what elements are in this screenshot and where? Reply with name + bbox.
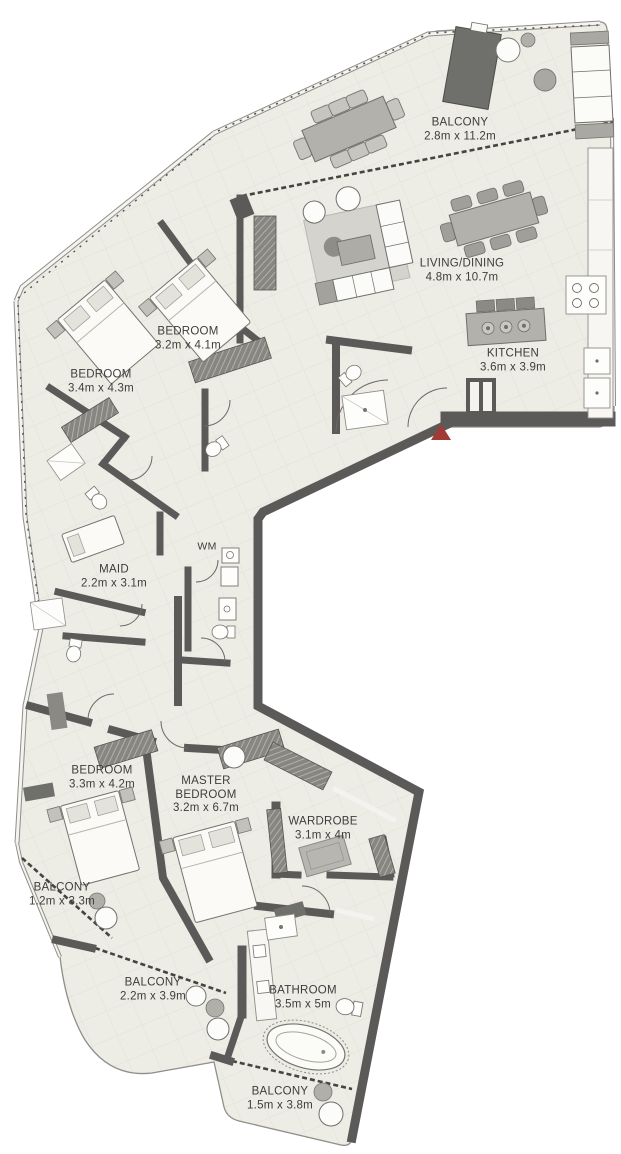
shower-icon <box>342 390 388 430</box>
master-chair-icon <box>223 746 245 768</box>
room-label-kitchen: KITCHEN3.6m x 3.9m <box>480 348 546 375</box>
balcony-pot-icon <box>521 33 535 47</box>
balcony-table-icon <box>534 69 556 91</box>
room-label-wm: WM <box>197 540 216 554</box>
floor-plan: BALCONY2.8m x 11.2m LIVING/DINING4.8m x … <box>0 0 621 1154</box>
room-label-wardrobe: WARDROBE3.1m x 4m <box>288 816 357 843</box>
washing-machine-icon <box>219 548 239 620</box>
room-label-balcony-left: BALCONY1.2m x 3.3m <box>29 882 95 909</box>
room-label-balcony-bottom: BALCONY1.5m x 3.8m <box>247 1086 313 1113</box>
shower-icon <box>30 598 66 630</box>
kitchen-island-icon <box>465 296 546 345</box>
room-label-bedroom-1: BEDROOM3.4m x 4.3m <box>68 369 134 396</box>
room-label-balcony-middle: BALCONY2.2m x 3.9m <box>120 977 186 1004</box>
room-label-bedroom-2: BEDROOM3.2m x 4.1m <box>155 326 221 353</box>
room-label-master-bedroom: MASTER BEDROOM3.2m x 6.7m <box>160 775 252 816</box>
room-label-balcony-top: BALCONY2.8m x 11.2m <box>424 117 496 144</box>
balcony-chair-icon <box>496 38 520 62</box>
room-label-living-dining: LIVING/DINING4.8m x 10.7m <box>420 258 504 285</box>
room-label-bedroom-3: BEDROOM3.3m x 4.2m <box>69 765 135 792</box>
room-label-bathroom: BATHROOM3.5m x 5m <box>269 985 337 1012</box>
toilet-icon <box>212 625 235 639</box>
shower-icon <box>265 914 298 940</box>
room-label-maid: MAID2.2m x 3.1m <box>81 564 147 591</box>
